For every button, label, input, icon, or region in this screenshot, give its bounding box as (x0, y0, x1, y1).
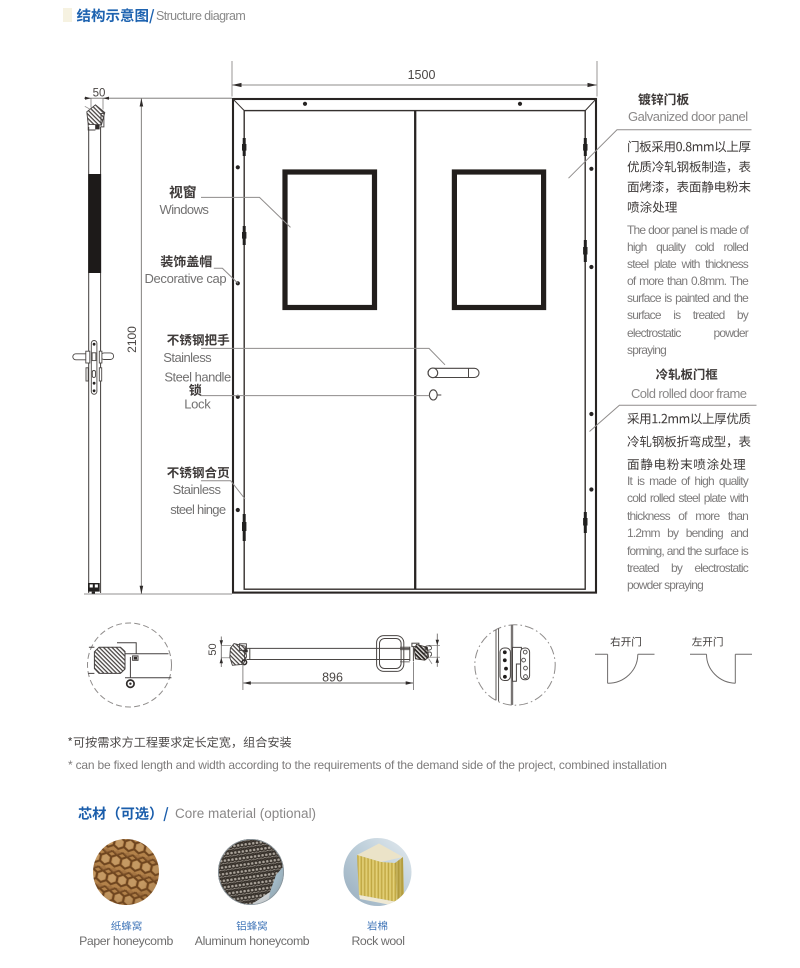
svg-text:Steel handle: Steel handle (164, 369, 231, 384)
svg-text:50: 50 (93, 88, 106, 100)
svg-text:Windows: Windows (160, 202, 210, 217)
svg-text:Stainless: Stainless (163, 350, 212, 365)
svg-text:2100: 2100 (125, 326, 139, 353)
svg-text:50: 50 (207, 643, 219, 655)
svg-text:Stainless: Stainless (173, 482, 222, 497)
svg-text:Decorative cap: Decorative cap (145, 271, 227, 286)
svg-text:steel hinge: steel hinge (170, 502, 226, 517)
svg-text:Lock: Lock (184, 396, 211, 411)
svg-text:50: 50 (423, 645, 435, 657)
svg-text:896: 896 (322, 671, 343, 685)
svg-text:1500: 1500 (408, 68, 436, 82)
